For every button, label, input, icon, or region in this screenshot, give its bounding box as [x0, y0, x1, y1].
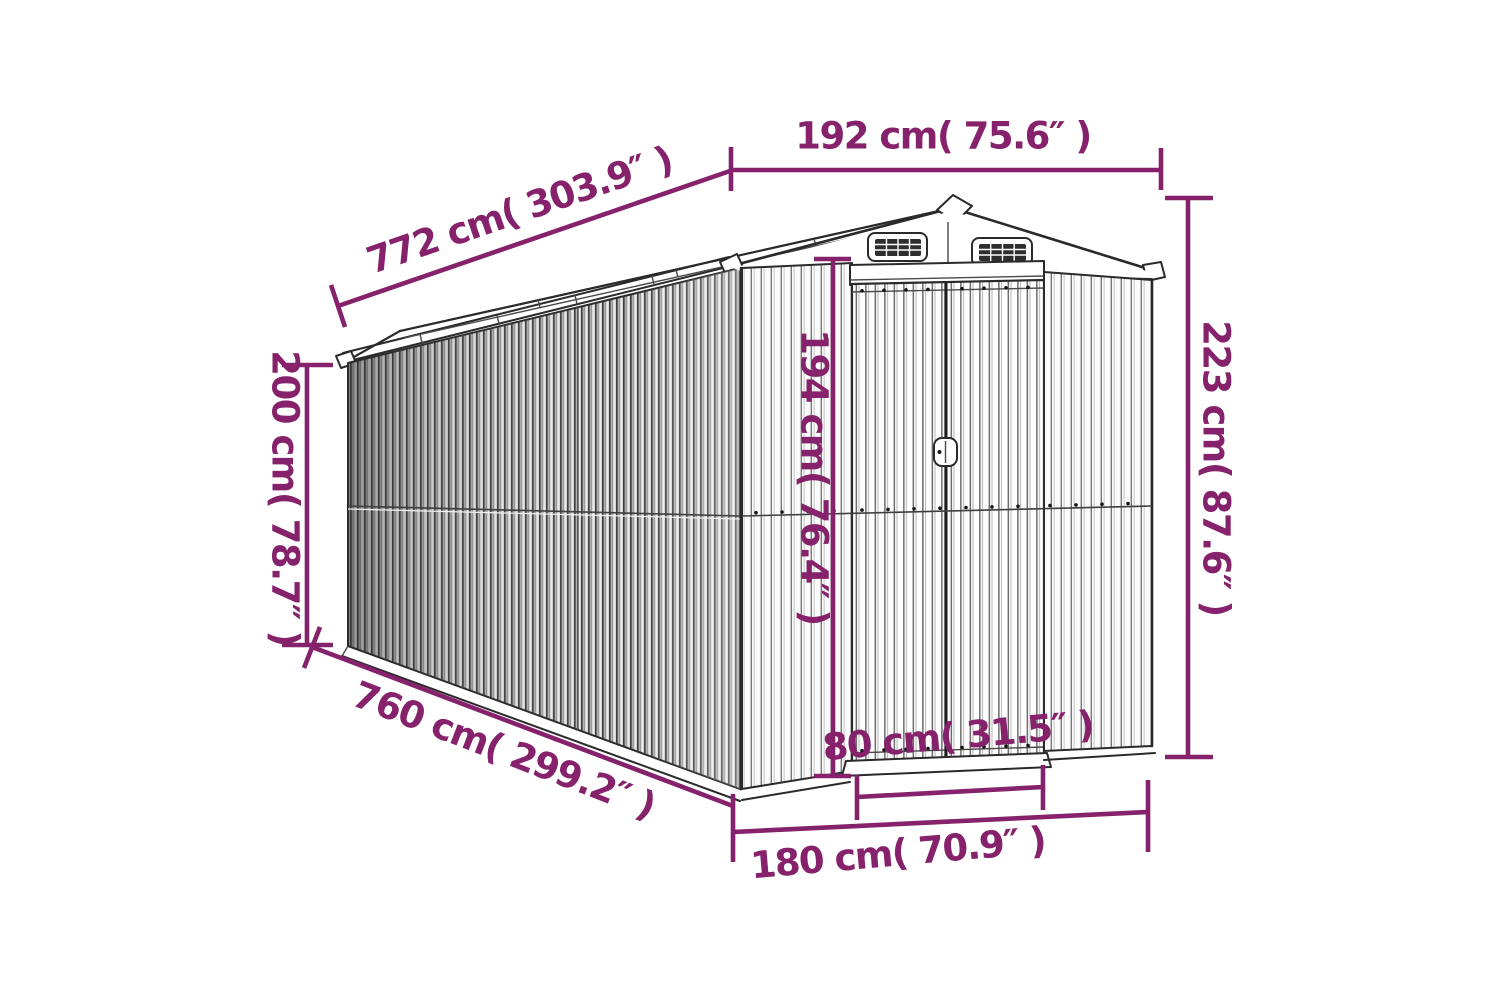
dim-side-wall-height: 200 cm( 78.7″ )	[264, 350, 334, 646]
shed-dimension-diagram: 772 cm( 303.9″ ) 192 cm( 75.6″ ) 223 cm(…	[0, 0, 1500, 1000]
door-handles	[934, 438, 957, 466]
dim-label-door-height: 194 cm( 76.4″ )	[793, 329, 836, 625]
dim-total-height: 223 cm( 87.6″ )	[1165, 198, 1238, 757]
dim-label-roof-front-width: 192 cm( 75.6″ )	[795, 115, 1091, 158]
gable-vent-left	[868, 233, 927, 261]
dim-label-total-height: 223 cm( 87.6″ )	[1195, 320, 1238, 616]
dim-base-front-width: 180 cm( 70.9″ )	[733, 780, 1148, 887]
dim-label-roof-length: 772 cm( 303.9″ )	[361, 138, 677, 283]
dim-roof-front-width: 192 cm( 75.6″ )	[731, 115, 1161, 192]
dim-label-side-wall-height: 200 cm( 78.7″ )	[264, 350, 307, 646]
front-doors	[852, 280, 1044, 763]
diagram-canvas: 772 cm( 303.9″ ) 192 cm( 75.6″ ) 223 cm(…	[0, 0, 1500, 1000]
front-right-base-rail	[1044, 753, 1155, 760]
front-right-panel	[1044, 272, 1152, 751]
